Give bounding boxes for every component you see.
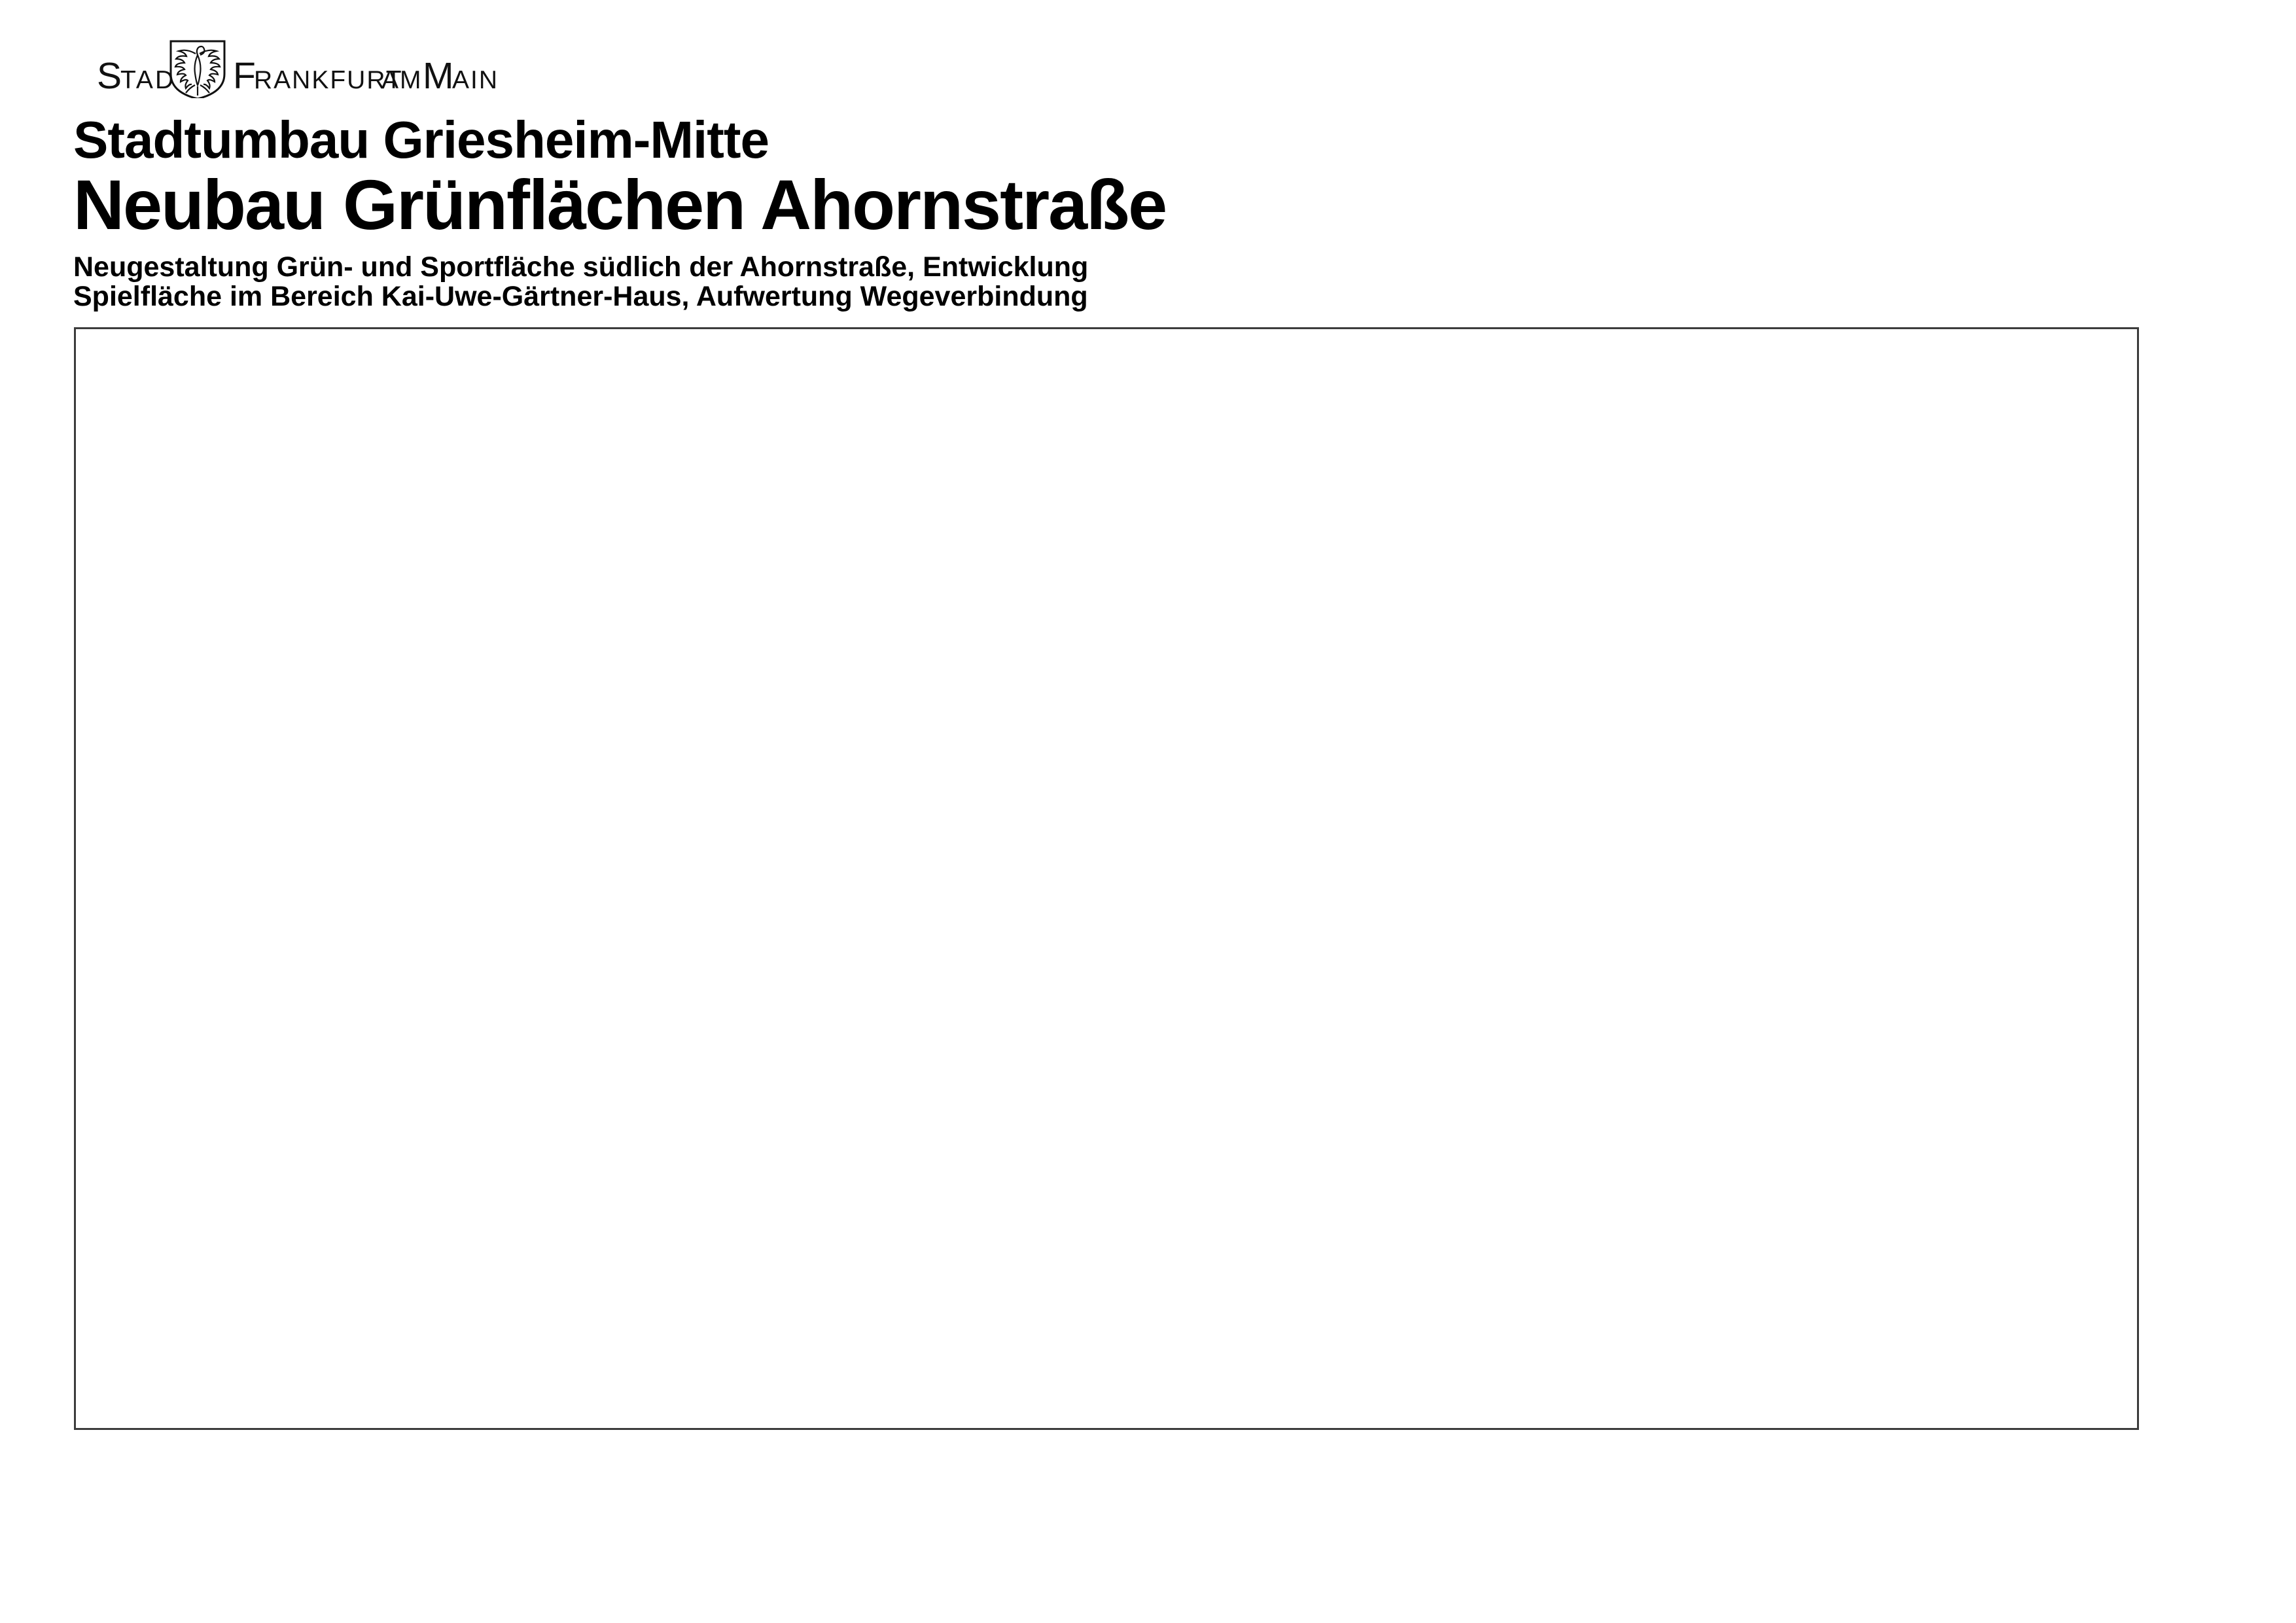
svg-text:AIN: AIN [452,66,499,94]
svg-text:RANKFURT: RANKFURT [254,66,403,94]
svg-text:S: S [97,55,123,97]
svg-text:M: M [423,55,453,97]
svg-text:F: F [233,55,256,97]
svg-text:AM: AM [381,66,423,94]
